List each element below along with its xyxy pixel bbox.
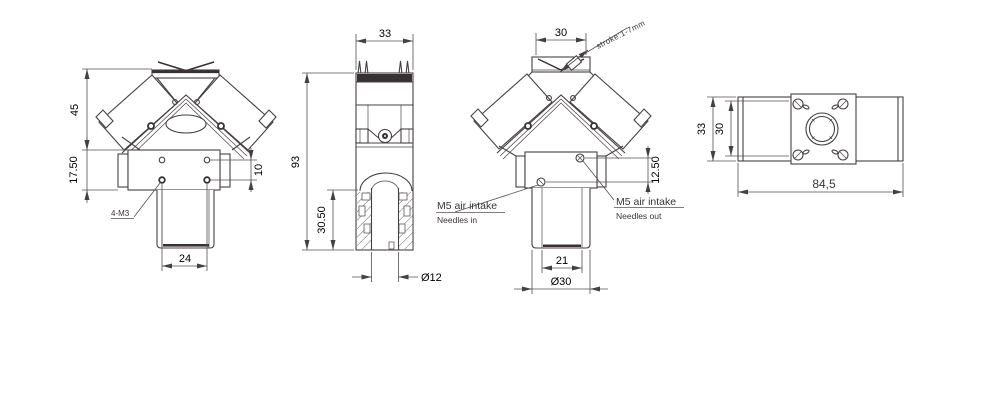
arm-screw bbox=[591, 123, 597, 129]
rear-view: 30 stroke:1-7mm 12.50 M5 air intake Need… bbox=[436, 18, 684, 294]
dim-45-label: 45 bbox=[69, 104, 81, 116]
top-plate bbox=[791, 94, 856, 164]
arm-screw bbox=[148, 123, 154, 129]
front-view: 45 17.50 10 24 4-M bbox=[68, 62, 276, 271]
port-right-subtitle: Needles out bbox=[616, 211, 662, 221]
port-right-title: M5 air intake bbox=[616, 196, 676, 208]
thread-callout-label: 4-M3 bbox=[111, 209, 130, 218]
dim-top-33-label: 33 bbox=[696, 123, 708, 135]
dimension-bore-depth: 30.50 bbox=[316, 190, 358, 250]
port-left-title: M5 air intake bbox=[437, 200, 497, 212]
m3-hole bbox=[159, 177, 165, 183]
arm-screw bbox=[218, 123, 224, 129]
dim-o30-label: Ø30 bbox=[551, 276, 572, 288]
m3-hole bbox=[204, 177, 210, 183]
dimension-rear-width: 30 bbox=[536, 27, 586, 55]
dim-84-5-label: 84,5 bbox=[812, 177, 836, 191]
dimension-length: 84,5 bbox=[738, 163, 903, 197]
side-section-view: 33 93 30.50 Ø12 bbox=[290, 28, 442, 284]
dim-17-50-label: 17.50 bbox=[68, 156, 80, 184]
dim-33-label: 33 bbox=[379, 28, 391, 40]
stroke-callout: stroke:1-7mm bbox=[584, 18, 647, 54]
dim-93-label: 93 bbox=[290, 156, 302, 168]
rear-body-block bbox=[525, 152, 597, 188]
top-view: 33 30 84,5 bbox=[696, 94, 903, 197]
dim-o12-label: Ø12 bbox=[421, 272, 442, 284]
dim-30-50-label: 30.50 bbox=[316, 206, 328, 234]
stroke-callout-label: stroke:1-7mm bbox=[595, 18, 647, 50]
rear-base-cylinder bbox=[532, 188, 590, 248]
dim-21-label: 21 bbox=[556, 255, 568, 267]
oval-slot bbox=[166, 115, 206, 133]
dimension-body-height: 17.50 bbox=[68, 137, 118, 203]
dimension-neck-width: 21 bbox=[542, 250, 582, 273]
arm-screw bbox=[525, 123, 531, 129]
dim-top-30-label: 30 bbox=[714, 123, 726, 135]
technical-drawing: 45 17.50 10 24 4-M bbox=[0, 0, 994, 403]
dim-30-label: 30 bbox=[555, 27, 567, 39]
dim-10-label: 10 bbox=[253, 164, 265, 176]
drawing-canvas: 45 17.50 10 24 4-M bbox=[0, 0, 994, 403]
port-left-subtitle: Needles in bbox=[437, 215, 477, 225]
dim-12-50-label: 12.50 bbox=[650, 156, 662, 184]
body-block bbox=[128, 150, 220, 190]
port-label-left: M5 air intake Needles in bbox=[436, 185, 538, 225]
dim-24-label: 24 bbox=[179, 253, 191, 265]
dimension-bore-diameter: Ø12 bbox=[352, 252, 442, 284]
base-cylinder bbox=[157, 190, 214, 248]
dimension-side-width: 33 bbox=[356, 28, 413, 70]
